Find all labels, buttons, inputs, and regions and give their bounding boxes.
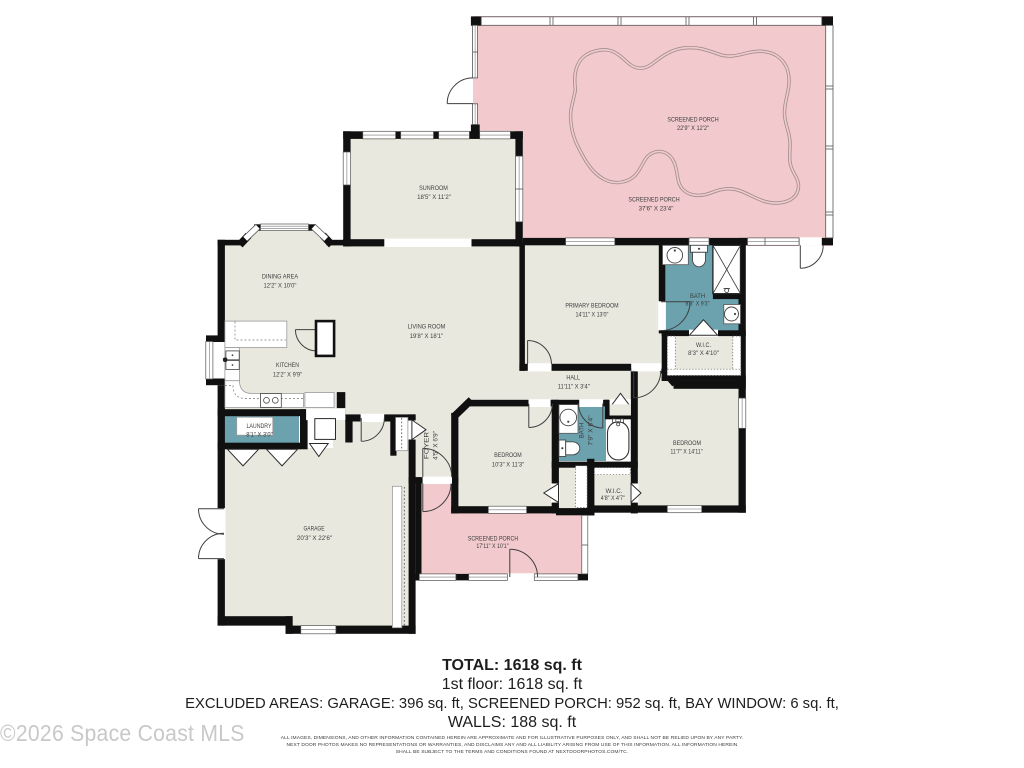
svg-text:W.I.C.: W.I.C.: [606, 488, 623, 495]
svg-text:10'3" X 11'3": 10'3" X 11'3": [492, 462, 524, 469]
svg-text:20'3" X 22'6": 20'3" X 22'6": [297, 535, 332, 542]
svg-text:BATH: BATH: [579, 422, 586, 438]
svg-text:LAUNDRY: LAUNDRY: [247, 423, 273, 430]
svg-text:DINING AREA: DINING AREA: [262, 274, 299, 281]
svg-text:SUNROOM: SUNROOM: [419, 185, 448, 192]
svg-text:KITCHEN: KITCHEN: [276, 362, 299, 369]
svg-text:SCREENED PORCH: SCREENED PORCH: [628, 197, 680, 204]
svg-text:17'11" X 10'1": 17'11" X 10'1": [476, 543, 508, 550]
svg-text:SCREENED PORCH: SCREENED PORCH: [667, 117, 719, 124]
svg-text:11'7" X 14'11": 11'7" X 14'11": [670, 448, 702, 455]
svg-text:W.I.C.: W.I.C.: [696, 342, 711, 349]
svg-text:8'1" X 3'0": 8'1" X 3'0": [246, 431, 272, 438]
svg-text:7'9" X 6'4": 7'9" X 6'4": [588, 415, 595, 445]
svg-text:GARAGE: GARAGE: [303, 526, 325, 533]
svg-text:SCREENED PORCH: SCREENED PORCH: [468, 536, 519, 543]
svg-text:4'8" X 4'7": 4'8" X 4'7": [601, 495, 625, 502]
svg-text:BATH: BATH: [690, 293, 705, 300]
svg-text:8'3" X 9'3": 8'3" X 9'3": [686, 301, 710, 308]
svg-text:14'11" X 13'0": 14'11" X 13'0": [576, 311, 609, 318]
svg-text:BEDROOM: BEDROOM: [673, 440, 701, 447]
svg-text:11'11" X 3'4": 11'11" X 3'4": [558, 383, 590, 390]
svg-text:18'5" X 11'2": 18'5" X 11'2": [417, 194, 451, 201]
svg-text:19'8" X 18'1": 19'8" X 18'1": [410, 333, 444, 340]
svg-text:PRIMARY BEDROOM: PRIMARY BEDROOM: [565, 303, 618, 310]
svg-text:HALL: HALL: [566, 375, 580, 382]
svg-text:8'3" X 4'10": 8'3" X 4'10": [688, 350, 719, 357]
svg-text:12'2" X 10'0": 12'2" X 10'0": [264, 282, 297, 289]
svg-text:4'5" X 6'9": 4'5" X 6'9": [433, 431, 440, 460]
svg-text:LIVING ROOM: LIVING ROOM: [408, 324, 446, 331]
svg-text:BEDROOM: BEDROOM: [494, 452, 522, 459]
svg-text:37'6" X 23'4": 37'6" X 23'4": [639, 205, 674, 212]
svg-text:FOYER: FOYER: [424, 432, 431, 459]
svg-text:22'9" X 12'2": 22'9" X 12'2": [677, 125, 709, 132]
svg-text:12'2" X 9'9": 12'2" X 9'9": [273, 372, 302, 379]
